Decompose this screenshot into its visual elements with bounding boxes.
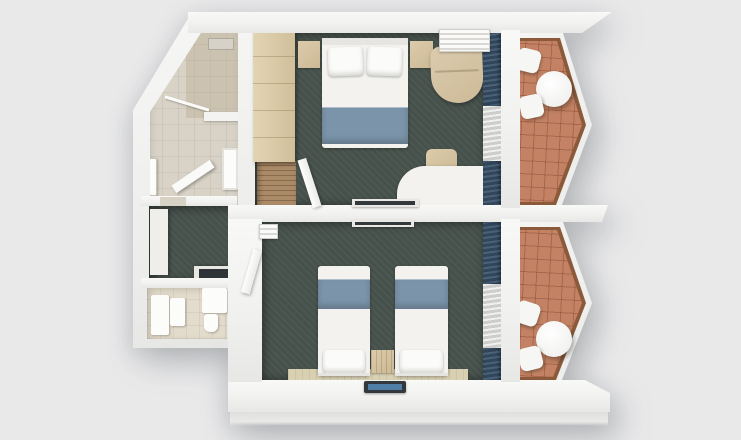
double-room-curtains <box>483 30 501 208</box>
bottom-wall <box>228 380 610 412</box>
middle-dividing-wall <box>228 205 608 222</box>
pillow-right <box>367 46 403 76</box>
bathroom-floor <box>146 20 238 205</box>
twin-room-left-wall <box>228 219 262 382</box>
wc-cabinet <box>170 298 185 326</box>
pillow-left <box>328 46 364 76</box>
bathroom-door-leaf <box>171 160 214 193</box>
building-unit <box>0 0 741 440</box>
corridor-closet <box>150 209 168 275</box>
twin-room-upper-tv-screen <box>355 222 411 225</box>
twin-bed-1 <box>318 266 370 376</box>
drape-bottom <box>483 161 501 208</box>
headboard <box>322 38 408 45</box>
twin-bed-2-pillow <box>400 350 443 373</box>
armchair-crease <box>435 69 479 73</box>
twin-room-curtains <box>483 222 501 382</box>
bathroom-sink <box>222 148 238 190</box>
double-room-window-wall <box>501 30 520 208</box>
floor-plan <box>0 0 741 440</box>
drape-top-2 <box>483 222 501 284</box>
shower-fixture <box>208 38 234 50</box>
wc-floor <box>147 286 227 339</box>
twin-room-ac-box <box>259 224 278 239</box>
bathroom-corridor-wall <box>141 196 237 206</box>
corridor-wc-wall <box>141 278 237 288</box>
toilet <box>204 314 218 332</box>
nightstand-left <box>298 41 320 68</box>
double-room-tv-screen <box>355 201 415 205</box>
bottom-wall-face <box>230 412 608 426</box>
twin-room-tv <box>364 381 406 393</box>
double-room-tv <box>352 199 419 207</box>
twin-room-upper-tv <box>352 220 414 227</box>
twin-bed-1-footboard <box>318 373 370 376</box>
corridor-floor <box>149 204 237 282</box>
twin-bed-1-pillow <box>323 350 365 373</box>
entry-wood-floor <box>257 160 296 207</box>
bed-runner <box>322 107 408 144</box>
twin-nightstand <box>371 350 394 373</box>
wardrobe <box>253 30 295 162</box>
sheer-middle <box>483 106 501 161</box>
ac-unit <box>439 29 490 52</box>
twin-bed-2 <box>395 266 448 376</box>
towel-rail <box>149 158 157 196</box>
twin-bed-2-runner <box>395 279 448 309</box>
bathroom-divider-wall <box>204 112 238 121</box>
double-bed <box>322 38 408 148</box>
twin-room-window-wall <box>501 219 520 382</box>
bathroom-door-opening <box>160 197 186 206</box>
balcony-lower-table <box>536 321 572 357</box>
twin-room-tv-screen <box>368 384 402 390</box>
twin-bed-2-footboard <box>395 373 448 376</box>
wc-vanity-partition <box>202 288 227 313</box>
twin-bed-1-runner <box>318 279 370 309</box>
sheer-middle-2 <box>483 284 501 348</box>
armchair <box>430 45 484 104</box>
washer-unit <box>151 295 169 335</box>
top-wall <box>188 12 612 33</box>
drape-bottom-2 <box>483 348 501 382</box>
